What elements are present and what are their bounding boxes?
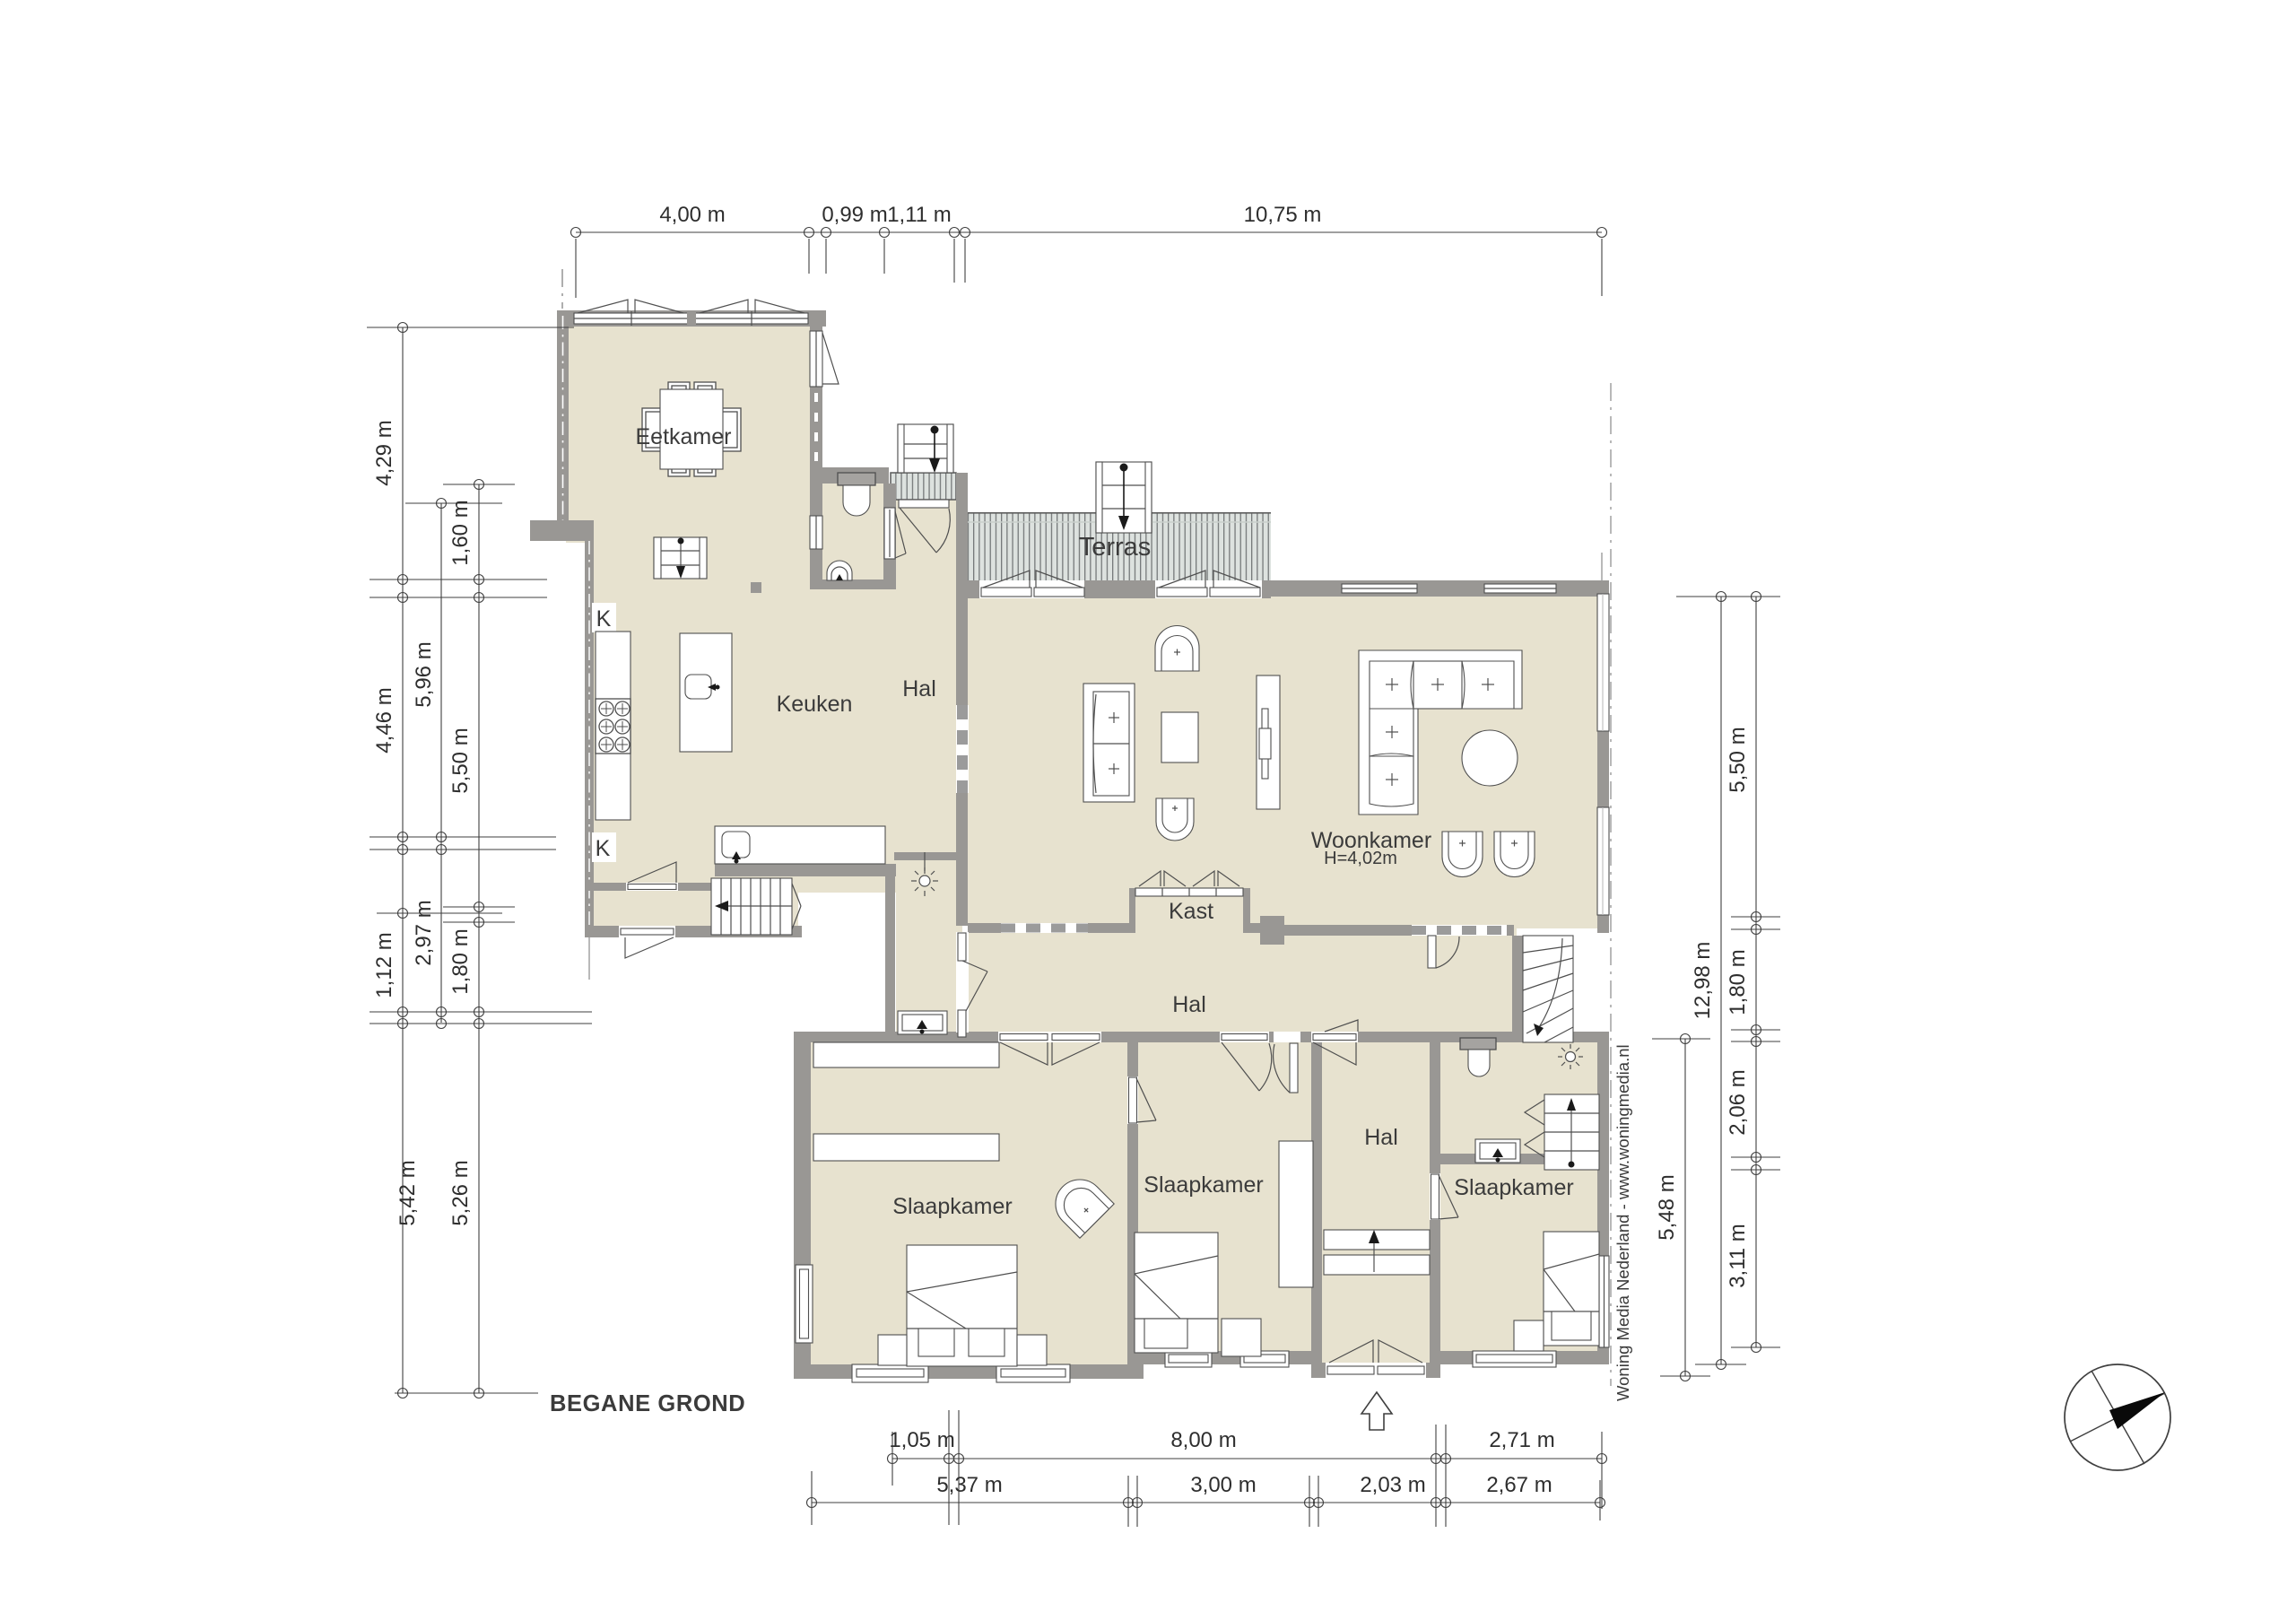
svg-text:4,46 m: 4,46 m [372, 687, 396, 753]
svg-text:1,05 m: 1,05 m [889, 1428, 954, 1452]
svg-text:Hal: Hal [902, 676, 936, 701]
svg-text:Hal: Hal [1172, 992, 1206, 1017]
svg-text:1,60 m: 1,60 m [448, 500, 473, 565]
svg-text:K: K [596, 606, 612, 632]
svg-text:5,26 m: 5,26 m [448, 1160, 473, 1225]
svg-text:BEGANE GROND: BEGANE GROND [550, 1391, 745, 1416]
svg-text:5,50 m: 5,50 m [1726, 727, 1750, 792]
svg-text:Keuken: Keuken [777, 692, 853, 717]
svg-text:2,71 m: 2,71 m [1489, 1428, 1554, 1452]
svg-text:2,67 m: 2,67 m [1486, 1473, 1552, 1497]
svg-text:Eetkamer: Eetkamer [636, 424, 732, 449]
svg-text:1,12 m: 1,12 m [372, 932, 396, 998]
svg-text:K: K [596, 836, 611, 861]
svg-text:5,48 m: 5,48 m [1655, 1174, 1679, 1240]
svg-text:12,98 m: 12,98 m [1691, 942, 1715, 1020]
svg-text:4,29 m: 4,29 m [372, 420, 396, 485]
svg-text:1,80 m: 1,80 m [448, 928, 473, 994]
svg-text:1,11 m: 1,11 m [887, 203, 952, 227]
svg-text:Slaapkamer: Slaapkamer [892, 1194, 1012, 1219]
svg-text:5,50 m: 5,50 m [448, 728, 473, 793]
svg-text:H=4,02m: H=4,02m [1324, 849, 1397, 868]
svg-text:Slaapkamer: Slaapkamer [1144, 1172, 1263, 1198]
svg-text:Terras: Terras [1079, 533, 1152, 562]
svg-text:1,80 m: 1,80 m [1726, 949, 1750, 1015]
svg-text:Hal: Hal [1364, 1125, 1398, 1150]
svg-text:0,99 m: 0,99 m [822, 203, 887, 227]
svg-text:3,11 m: 3,11 m [1726, 1224, 1750, 1288]
svg-text:8,00 m: 8,00 m [1170, 1428, 1236, 1452]
svg-text:2,06 m: 2,06 m [1726, 1069, 1750, 1135]
svg-text:Kast: Kast [1169, 899, 1213, 924]
svg-text:2,97 m: 2,97 m [412, 900, 436, 965]
svg-text:2,03 m: 2,03 m [1360, 1473, 1425, 1497]
svg-text:10,75 m: 10,75 m [1244, 203, 1322, 227]
svg-text:4,00 m: 4,00 m [659, 203, 725, 227]
svg-text:5,37 m: 5,37 m [936, 1473, 1002, 1497]
svg-text:Woning Media Nederland - www.w: Woning Media Nederland - www.woningmedia… [1613, 1044, 1632, 1401]
svg-text:3,00 m: 3,00 m [1190, 1473, 1256, 1497]
svg-text:5,96 m: 5,96 m [412, 641, 436, 707]
svg-text:5,42 m: 5,42 m [396, 1160, 420, 1225]
svg-text:Slaapkamer: Slaapkamer [1454, 1175, 1573, 1200]
